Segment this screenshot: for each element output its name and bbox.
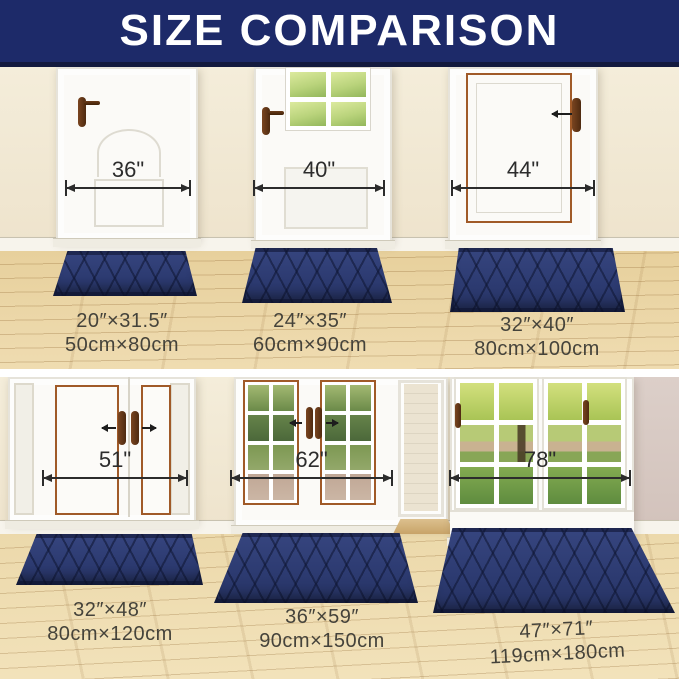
window-pane (460, 383, 494, 420)
width-measure-51: 51" (43, 477, 187, 479)
width-measure-44: 44" (452, 187, 594, 189)
extent-tick (391, 470, 393, 486)
mat-size-inches: 24″×35″ (200, 309, 420, 333)
door-width-label: 62" (295, 447, 327, 473)
door-width-label: 51" (99, 447, 131, 473)
latch-arrow-icon (552, 113, 572, 115)
wall-accent (632, 377, 679, 534)
latch-arrow-icon (142, 427, 156, 429)
extent-tick (451, 180, 453, 196)
extent-tick (629, 470, 631, 486)
window-pane (290, 72, 326, 97)
width-measure-40: 40" (254, 187, 384, 189)
door-handle-icon (78, 97, 86, 127)
arrowhead-left-icon (450, 474, 459, 482)
mat-size-cm: 80cm×120cm (0, 622, 220, 646)
window-pane (273, 385, 294, 411)
doormat (16, 534, 203, 585)
mat-size-cm: 80cm×100cm (427, 337, 647, 361)
wood-threshold (393, 519, 455, 534)
row-separator (0, 369, 679, 377)
door-lever-icon (84, 101, 100, 105)
mat-size-cm: 50cm×80cm (12, 333, 232, 357)
mat-size-inches: 20″×31.5″ (12, 309, 232, 333)
extent-tick (449, 470, 451, 486)
sidelight-blind (404, 384, 438, 511)
door-36-inch (56, 67, 198, 241)
arrowhead-left-icon (66, 184, 75, 192)
size-comparison-infographic: SIZE COMPARISON (0, 0, 679, 679)
doormat (242, 248, 392, 303)
extent-tick (383, 180, 385, 196)
extent-tick (189, 180, 191, 196)
glass-door-leaf (542, 377, 627, 510)
window-pane (587, 383, 621, 420)
extent-tick (253, 180, 255, 196)
extent-tick (186, 470, 188, 486)
door-handle-icon (118, 411, 126, 445)
window-pane (350, 415, 371, 441)
window-pane (248, 385, 269, 411)
door-handle-icon (315, 407, 322, 439)
sidelight (170, 383, 190, 515)
mat-size-cm: 60cm×90cm (200, 333, 420, 357)
mat-size-cm: 90cm×150cm (212, 629, 432, 653)
window-pane (325, 385, 346, 411)
mat-size-inches: 32″×40″ (427, 313, 647, 337)
width-measure-36: 36" (66, 187, 190, 189)
door-44-inch (448, 67, 598, 243)
window-pane (460, 425, 494, 462)
mat-size-label: 24″×35″ 60cm×90cm (200, 309, 420, 358)
door-handle-icon (583, 400, 589, 425)
mat-size-label: 20″×31.5″ 50cm×80cm (12, 309, 232, 358)
width-measure-62: 62" (231, 477, 392, 479)
window-pane (273, 445, 294, 471)
latch-arrow-icon (290, 422, 302, 424)
window-pane (248, 415, 269, 441)
window-pane (331, 102, 367, 127)
width-measure-78: 78" (450, 477, 630, 479)
door-lever-icon (268, 111, 284, 115)
door-sill (53, 238, 201, 247)
extent-tick (42, 470, 44, 486)
inner-molding (476, 83, 562, 213)
door-window (285, 67, 371, 131)
window-pane (325, 445, 346, 471)
mat-size-label: 32″×48″ 80cm×120cm (0, 598, 220, 647)
door-width-label: 78" (524, 447, 556, 473)
arrowhead-left-icon (452, 184, 461, 192)
arrowhead-left-icon (231, 474, 240, 482)
window-pane (350, 445, 371, 471)
door-sill (251, 240, 395, 249)
window-pane (460, 467, 494, 504)
window-pane (499, 383, 533, 420)
latch-arrow-icon (326, 422, 338, 424)
window-pane (587, 425, 621, 462)
mat-size-inches: 36″×59″ (212, 605, 432, 629)
arrowhead-left-icon (43, 474, 52, 482)
door-40-inch (254, 67, 392, 243)
french-door-window (243, 380, 299, 505)
scene-bottom-row: 51" 62" 78" 32″×48″ 80cm×120cm 36″×59″ 9… (0, 377, 679, 679)
doormat (450, 248, 625, 312)
mat-size-inches: 32″×48″ (0, 598, 220, 622)
door-sill (445, 240, 601, 249)
page-title: SIZE COMPARISON (120, 6, 560, 56)
scene-top-row: 36" 40" 44" 20″×31.5″ 50cm×80cm 24″×35″ … (0, 67, 679, 369)
mat-size-label: 32″×40″ 80cm×100cm (427, 313, 647, 362)
copper-trim-panel (466, 73, 572, 223)
door-handle-icon (131, 411, 139, 445)
door-width-label: 44" (507, 157, 539, 183)
door-width-label: 36" (112, 157, 144, 183)
door-handle-icon (262, 107, 270, 135)
french-door-window (320, 380, 376, 505)
mat-size-label: 36″×59″ 90cm×150cm (212, 605, 432, 654)
doormat (53, 251, 197, 296)
sidelight (398, 380, 444, 517)
door-handle-icon (455, 403, 461, 428)
arrowhead-left-icon (254, 184, 263, 192)
window-pane (290, 102, 326, 127)
extent-tick (65, 180, 67, 196)
door-width-label: 40" (303, 157, 335, 183)
extent-tick (593, 180, 595, 196)
window-pane (331, 72, 367, 97)
door-sill (5, 520, 199, 529)
copper-trim-panel (141, 385, 171, 515)
door-handle-icon (572, 98, 581, 132)
latch-arrow-icon (102, 427, 116, 429)
window-pane (548, 383, 582, 420)
window-pane (350, 385, 371, 411)
door-handle-icon (306, 407, 313, 439)
sidelight (14, 383, 34, 515)
glass-door-leaf (454, 377, 539, 510)
window-pane (587, 467, 621, 504)
doormat (214, 533, 418, 603)
door-62-inch-french (234, 377, 448, 528)
window-pane (248, 445, 269, 471)
title-banner: SIZE COMPARISON (0, 0, 679, 67)
extent-tick (230, 470, 232, 486)
